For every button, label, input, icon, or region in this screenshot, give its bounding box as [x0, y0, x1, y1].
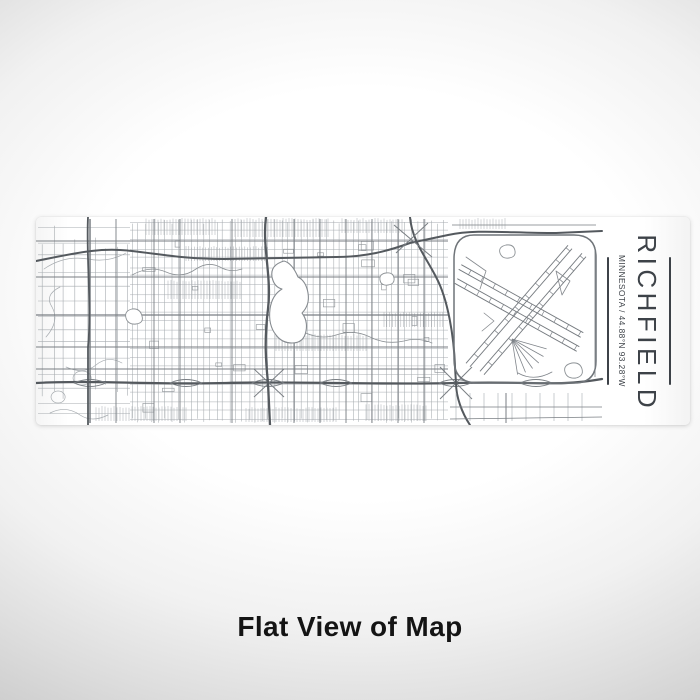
backdrop: RICHFIELD MINNESOTA / 44.88°N 93.28°W Fl…	[0, 0, 700, 700]
street-map-graphic	[36, 217, 604, 425]
map-title: RICHFIELD	[631, 230, 662, 412]
map-label-zone: RICHFIELD MINNESOTA / 44.88°N 93.28°W	[604, 217, 690, 425]
map-panel: RICHFIELD MINNESOTA / 44.88°N 93.28°W	[36, 217, 690, 425]
map-subtitle: MINNESOTA / 44.88°N 93.28°W	[617, 255, 627, 387]
view-caption: Flat View of Map	[0, 611, 700, 643]
title-underline-rule	[607, 257, 609, 385]
title-overline-rule	[669, 257, 671, 385]
map-label-block: RICHFIELD MINNESOTA / 44.88°N 93.28°W	[607, 245, 671, 397]
